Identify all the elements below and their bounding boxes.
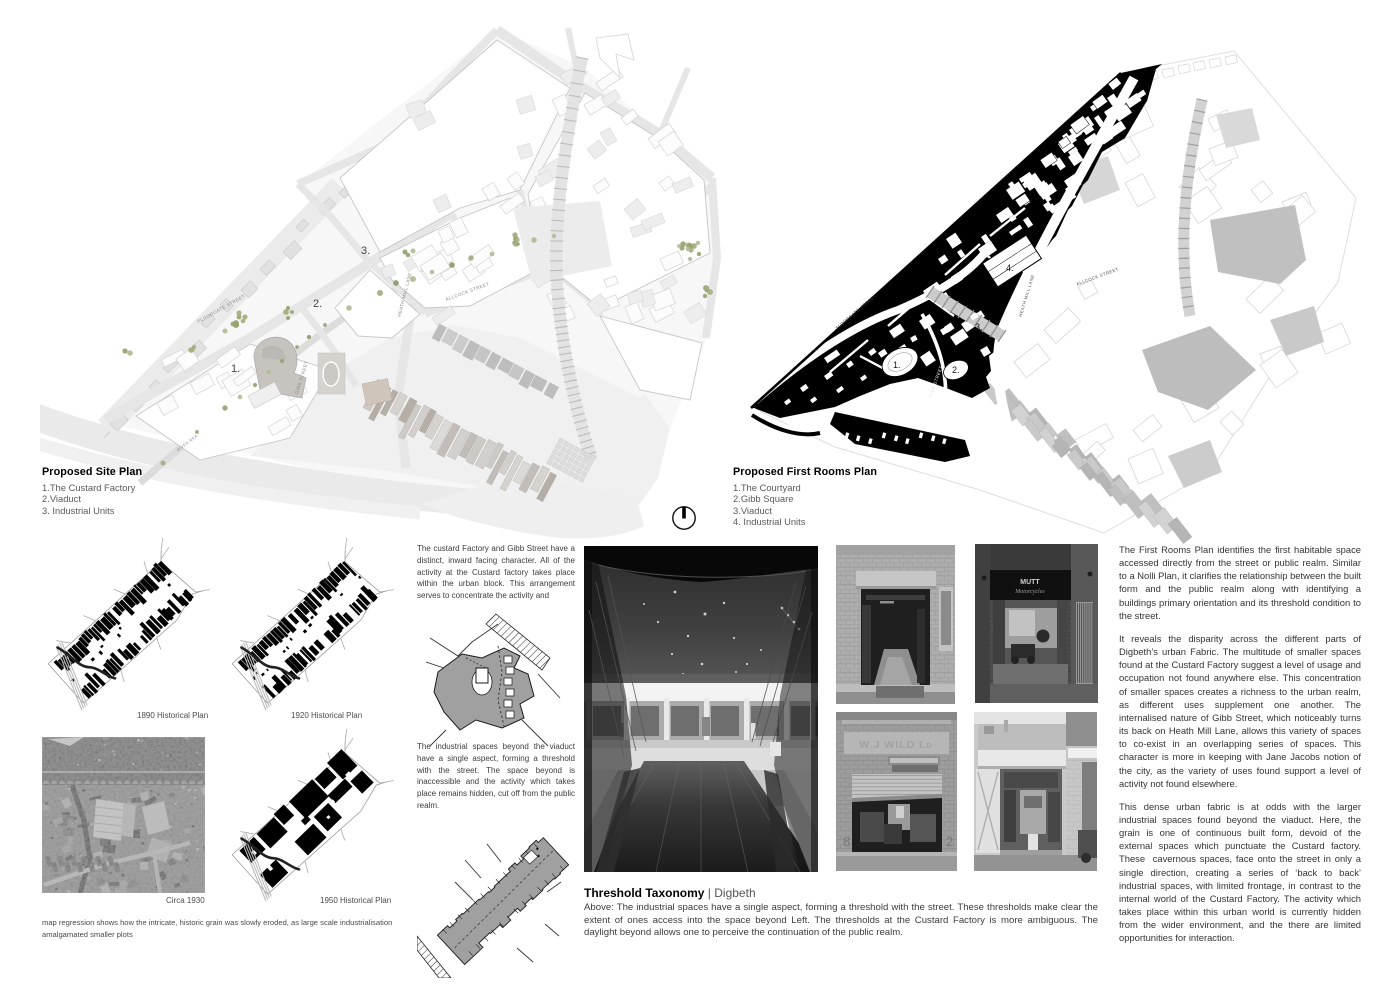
svg-text:3.: 3. bbox=[361, 245, 370, 257]
svg-text:MUTT: MUTT bbox=[1020, 579, 1040, 586]
svg-text:2.: 2. bbox=[313, 298, 322, 310]
svg-text:Motorcycles: Motorcycles bbox=[1014, 589, 1045, 595]
svg-text:1.: 1. bbox=[231, 363, 240, 375]
svg-text:W.J WILD LD: W.J WILD LD bbox=[859, 739, 932, 751]
svg-text:1.: 1. bbox=[893, 360, 901, 370]
svg-text:3.: 3. bbox=[975, 322, 983, 332]
svg-text:8: 8 bbox=[843, 834, 850, 849]
svg-text:2.: 2. bbox=[952, 365, 960, 375]
svg-text:4.: 4. bbox=[1006, 263, 1014, 273]
svg-text:2: 2 bbox=[946, 834, 953, 849]
